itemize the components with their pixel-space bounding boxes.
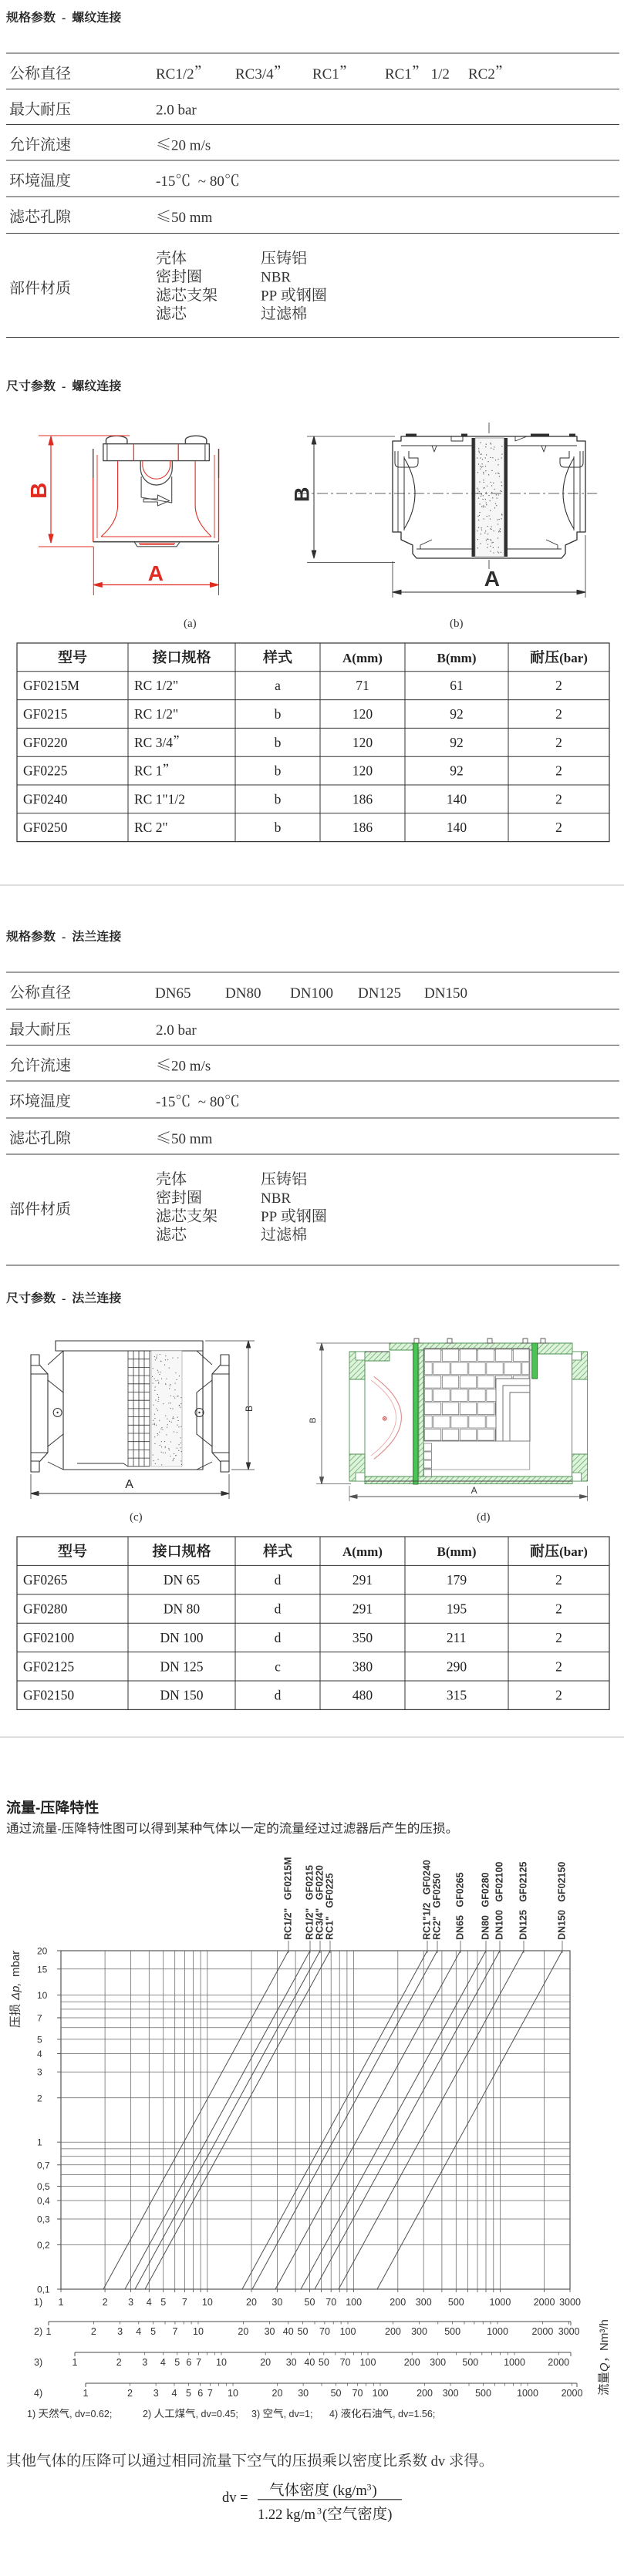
svg-text:dv: dv [431,2454,446,2470]
svg-text:2: 2 [555,763,562,779]
svg-text:DN100: DN100 [290,985,333,1002]
svg-text:GF02125: GF02125 [518,1862,529,1902]
svg-text:2: 2 [555,1688,562,1703]
svg-text:350: 350 [352,1630,373,1645]
svg-text:DN: DN [164,1572,184,1588]
svg-text:65: 65 [187,1572,201,1588]
svg-text:5: 5 [37,2034,42,2045]
svg-text:2: 2 [555,735,562,750]
svg-text:70: 70 [325,2297,336,2308]
svg-text:300: 300 [430,2357,446,2368]
svg-text:380: 380 [352,1658,373,1674]
svg-text:2: 2 [91,2326,96,2337]
svg-text:0,3: 0,3 [37,2214,50,2225]
svg-text:120: 120 [352,735,373,750]
svg-text:3: 3 [367,2482,372,2493]
svg-text:5: 5 [186,2388,191,2399]
svg-text:1000: 1000 [504,2357,525,2368]
svg-text:10: 10 [202,2297,213,2308]
svg-text:10: 10 [216,2357,227,2368]
svg-text:,: , [284,2409,286,2419]
svg-text:dv=1;: dv=1; [289,2409,313,2419]
svg-text:GF0225: GF0225 [325,1873,336,1908]
svg-text:(d): (d) [477,1511,491,1524]
svg-text:PP: PP [261,1209,277,1225]
svg-text:NBR: NBR [261,1190,291,1207]
svg-text:2: 2 [555,1630,562,1645]
svg-text:c: c [275,1658,281,1674]
svg-text:211: 211 [447,1630,467,1645]
svg-text:15: 15 [37,1964,48,1975]
svg-text:GF02125: GF02125 [23,1658,74,1674]
svg-text:DN100: DN100 [494,1910,505,1940]
svg-text:b: b [275,791,282,806]
svg-text:2000: 2000 [562,2388,583,2399]
svg-text:7: 7 [207,2388,213,2399]
svg-text:6: 6 [186,2357,191,2368]
svg-text:DN: DN [164,1601,184,1617]
svg-text:A: A [148,561,164,585]
svg-text:PP: PP [261,288,277,305]
svg-text:30: 30 [286,2357,297,2368]
svg-text:RC: RC [134,820,152,835]
svg-text:,: , [196,2409,198,2419]
svg-text:RC1/2": RC1/2" [283,1908,294,1940]
svg-text:2): 2) [143,2409,151,2419]
svg-text:RC: RC [134,706,152,722]
svg-text:10: 10 [37,1990,48,2001]
svg-text:30: 30 [272,2297,282,2308]
svg-text:6: 6 [197,2388,203,2399]
svg-text:RC1: RC1 [312,66,339,82]
svg-text:40: 40 [283,2326,294,2337]
svg-text:1/2": 1/2" [156,678,179,693]
svg-text:m/s: m/s [190,138,211,154]
svg-text:1"1/2: 1"1/2 [156,791,185,806]
svg-text:GF0225: GF0225 [23,763,68,779]
svg-text:3: 3 [153,2388,159,2399]
svg-text:0,1: 0,1 [37,2285,50,2295]
svg-text:GF0240: GF0240 [422,1860,433,1894]
svg-text:DN125: DN125 [358,985,401,1002]
svg-text:RC: RC [134,791,152,806]
svg-text:A(mm): A(mm) [342,1544,383,1559]
svg-text:291: 291 [352,1572,373,1588]
svg-text:1.22: 1.22 [258,2507,282,2523]
svg-text:500: 500 [448,2297,464,2308]
svg-text:70: 70 [340,2357,351,2368]
svg-text:3000: 3000 [559,2297,581,2308]
svg-text:RC: RC [134,678,152,693]
svg-text:2: 2 [103,2297,108,2308]
svg-text:A: A [484,567,500,591]
svg-text:500: 500 [444,2326,460,2337]
svg-text:-: - [62,380,66,393]
svg-text:1: 1 [59,2297,64,2308]
svg-text:61: 61 [450,678,464,693]
svg-text:50: 50 [298,2326,309,2337]
svg-text:(bar): (bar) [559,1544,588,1559]
svg-text:2: 2 [116,2357,122,2368]
svg-text:70: 70 [319,2326,330,2337]
svg-text:1/2": 1/2" [156,706,179,722]
svg-text:20: 20 [272,2388,283,2399]
svg-text:3: 3 [117,2326,123,2337]
svg-text:d: d [275,1601,282,1617]
svg-text:RC1: RC1 [385,66,412,82]
svg-text:3: 3 [128,2297,133,2308]
svg-text:): ) [373,2483,377,2499]
svg-text:GF02150: GF02150 [557,1862,568,1902]
svg-text:3): 3) [251,2409,260,2419]
svg-text:b: b [275,735,282,750]
svg-text:DN80: DN80 [481,1915,491,1940]
svg-text:d: d [275,1688,282,1703]
svg-text:200: 200 [390,2297,406,2308]
svg-text:100: 100 [346,2297,362,2308]
svg-text:GF02150: GF02150 [23,1688,74,1703]
svg-text:(bar): (bar) [559,651,588,665]
svg-text:(kg/m: (kg/m [333,2483,368,2499]
svg-text:GF0215M: GF0215M [283,1857,294,1901]
svg-text:B: B [244,1406,255,1412]
svg-text:kg/m: kg/m [286,2507,316,2523]
svg-text:4: 4 [147,2297,152,2308]
svg-text:140: 140 [447,820,467,835]
svg-text:-: - [57,1823,61,1836]
svg-text:Δp,: Δp, [9,1982,22,2001]
svg-text:2: 2 [555,820,562,835]
svg-text:DN65: DN65 [455,1915,466,1940]
svg-text:dv=0.62;: dv=0.62; [75,2409,112,2419]
svg-text:GF0280: GF0280 [23,1601,68,1617]
svg-text:2.0: 2.0 [156,103,174,119]
svg-text:-: - [62,931,66,944]
svg-text:GF02100: GF02100 [23,1630,74,1645]
svg-text:80: 80 [210,173,224,190]
svg-text:186: 186 [352,820,373,835]
svg-text:195: 195 [447,1601,467,1617]
svg-text:70: 70 [352,2388,363,2399]
svg-text:315: 315 [447,1688,467,1703]
svg-text:RC2": RC2" [432,1916,443,1940]
svg-text:290: 290 [447,1658,467,1674]
svg-text:71: 71 [356,678,369,693]
svg-text:DN: DN [160,1688,180,1703]
svg-text:NBR: NBR [261,270,291,286]
svg-text:20: 20 [171,138,186,154]
svg-text:4: 4 [136,2326,141,2337]
svg-text:-: - [35,1800,40,1817]
svg-text:RC: RC [134,735,152,750]
svg-text:RC1/2": RC1/2" [305,1908,315,1940]
svg-text:300: 300 [411,2326,427,2337]
svg-text:120: 120 [352,763,373,779]
svg-text:92: 92 [450,735,464,750]
svg-text:0,4: 0,4 [37,2196,50,2207]
svg-text:4): 4) [34,2388,42,2399]
svg-text:DN125: DN125 [518,1910,529,1940]
svg-text:50: 50 [319,2357,329,2368]
svg-text:(a): (a) [184,618,197,630]
svg-text:B: B [291,487,314,503]
svg-text:20: 20 [246,2297,257,2308]
svg-text:50: 50 [305,2297,315,2308]
svg-text:3000: 3000 [558,2326,580,2337]
svg-text:3/4: 3/4 [156,735,174,750]
svg-text:DN: DN [160,1630,180,1645]
svg-text:2: 2 [555,706,562,722]
svg-text:2: 2 [555,791,562,806]
svg-text:dv=1.56;: dv=1.56; [398,2409,435,2419]
svg-text:DN150: DN150 [557,1910,568,1940]
svg-text:100: 100 [360,2357,376,2368]
svg-text:mbar: mbar [9,1951,22,1977]
svg-text:125: 125 [183,1658,204,1674]
svg-text:5: 5 [160,2297,166,2308]
svg-text:50: 50 [171,1131,186,1147]
svg-text:2: 2 [555,1658,562,1674]
svg-text:1000: 1000 [517,2388,538,2399]
svg-text:2000: 2000 [534,2297,555,2308]
svg-text:1: 1 [73,2357,78,2368]
svg-text:bar: bar [178,103,197,119]
svg-text:100: 100 [183,1630,204,1645]
svg-text:DN80: DN80 [225,985,261,1002]
svg-text:80: 80 [210,1094,224,1110]
svg-text:-15: -15 [156,173,175,190]
svg-text:200: 200 [385,2326,401,2337]
svg-text:291: 291 [352,1601,373,1617]
svg-text:GF02100: GF02100 [494,1862,505,1902]
svg-text:7: 7 [37,2013,42,2024]
svg-text:30: 30 [298,2388,309,2399]
svg-text:80: 80 [187,1601,201,1617]
svg-text:1: 1 [156,763,163,779]
svg-text:4: 4 [172,2388,177,2399]
svg-text:2): 2) [34,2326,42,2337]
svg-text:7: 7 [196,2357,201,2368]
svg-text:1: 1 [46,2326,52,2337]
svg-text:GF0215: GF0215 [23,706,68,722]
svg-text:GF0215: GF0215 [305,1865,315,1900]
svg-text:5: 5 [150,2326,156,2337]
svg-text:GF0220: GF0220 [23,735,68,750]
svg-text:GF0265: GF0265 [23,1572,68,1588]
svg-text:RC1"1/2: RC1"1/2 [422,1903,433,1940]
svg-text:3: 3 [37,2067,42,2078]
svg-text:dv: dv [222,2490,237,2506]
svg-text:,: , [393,2409,395,2419]
svg-text:1): 1) [34,2297,42,2308]
svg-text:GF0280: GF0280 [481,1872,491,1907]
svg-text:B: B [27,483,52,499]
svg-text:120: 120 [352,706,373,722]
svg-text:-: - [62,12,66,25]
svg-text:2: 2 [555,1572,562,1588]
svg-text:d: d [275,1630,282,1645]
svg-text:=: = [240,2490,248,2506]
svg-text:3: 3 [142,2357,147,2368]
svg-text:2000: 2000 [548,2357,569,2368]
svg-text:500: 500 [475,2388,491,2399]
svg-text:0,5: 0,5 [37,2181,50,2192]
svg-text:a: a [275,678,281,693]
svg-text:300: 300 [416,2297,432,2308]
svg-text:(: ( [322,2507,327,2523]
svg-text:92: 92 [450,763,464,779]
svg-text:300: 300 [443,2388,459,2399]
svg-text:20: 20 [37,1946,48,1957]
svg-text:A: A [125,1478,133,1491]
svg-text:1/2: 1/2 [431,66,450,82]
svg-text:140: 140 [447,791,467,806]
svg-text:B(mm): B(mm) [437,1544,477,1559]
svg-text:GF0250: GF0250 [432,1873,443,1908]
svg-text:(b): (b) [450,618,464,630]
svg-text:3: 3 [317,2506,322,2517]
svg-text:GF0220: GF0220 [315,1865,325,1900]
svg-text:Q: Q [598,2362,611,2372]
svg-text:mm: mm [190,210,213,226]
svg-text:Nm³/h: Nm³/h [598,2319,611,2351]
svg-text:50: 50 [171,210,186,226]
svg-text:2": 2" [156,820,168,835]
svg-text:RC3/4": RC3/4" [315,1908,325,1940]
svg-text:10: 10 [228,2388,238,2399]
svg-text:A(mm): A(mm) [342,651,383,665]
svg-text:2000: 2000 [532,2326,554,2337]
svg-text:,: , [69,2409,72,2419]
svg-text:~: ~ [198,173,206,190]
svg-text:7: 7 [182,2297,187,2308]
svg-text:2: 2 [555,678,562,693]
svg-text:-15: -15 [156,1094,175,1110]
svg-text:150: 150 [183,1688,204,1703]
svg-text:480: 480 [352,1688,373,1703]
svg-text:10: 10 [193,2326,204,2337]
svg-text:100: 100 [373,2388,389,2399]
svg-text:): ) [387,2507,392,2523]
svg-text:2: 2 [37,2093,42,2103]
svg-text:GF0240: GF0240 [23,791,68,806]
svg-text:1000: 1000 [490,2297,511,2308]
svg-text:100: 100 [340,2326,356,2337]
svg-text:mm: mm [190,1131,213,1147]
svg-text:4): 4) [329,2409,338,2419]
svg-text:200: 200 [417,2388,433,2399]
svg-text:200: 200 [404,2357,420,2368]
svg-text:~: ~ [198,1094,206,1110]
svg-text:RC: RC [134,763,152,779]
svg-text:1: 1 [83,2388,89,2399]
svg-text:bar: bar [178,1022,197,1039]
svg-text:4: 4 [37,2049,42,2059]
svg-text:20: 20 [238,2326,248,2337]
svg-text:3): 3) [34,2357,42,2368]
svg-text:50: 50 [331,2388,342,2399]
svg-text:b: b [275,820,282,835]
svg-text:dv=0.45;: dv=0.45; [201,2409,238,2419]
svg-text:40: 40 [304,2357,315,2368]
svg-text:186: 186 [352,791,373,806]
svg-text:2.0: 2.0 [156,1022,174,1039]
svg-text:7: 7 [173,2326,178,2337]
svg-text:GF0215M: GF0215M [23,678,79,693]
svg-text:d: d [275,1572,282,1588]
svg-text:20: 20 [171,1059,186,1075]
svg-text:20: 20 [260,2357,271,2368]
svg-text:DN: DN [160,1658,180,1674]
svg-text:RC1/2: RC1/2 [156,66,194,82]
svg-text:m/s: m/s [190,1059,211,1075]
svg-text:A: A [471,1485,477,1496]
svg-text:b: b [275,763,282,779]
svg-text:RC3/4: RC3/4 [235,66,274,82]
svg-text:1): 1) [27,2409,35,2419]
svg-text:2: 2 [127,2388,133,2399]
svg-text:0,7: 0,7 [37,2160,50,2170]
svg-text:500: 500 [462,2357,478,2368]
svg-text:RC1": RC1" [325,1916,336,1940]
svg-text:RC2: RC2 [468,66,495,82]
svg-text:GF0250: GF0250 [23,820,68,835]
svg-text:DN65: DN65 [155,985,191,1002]
svg-text:4: 4 [160,2357,166,2368]
svg-text:GF0265: GF0265 [455,1872,466,1907]
svg-text:5: 5 [174,2357,180,2368]
svg-text:DN150: DN150 [424,985,467,1002]
svg-text:0,2: 0,2 [37,2240,50,2251]
svg-text:-: - [62,1292,66,1305]
svg-text:1: 1 [37,2137,42,2148]
svg-text:92: 92 [450,706,464,722]
svg-text:179: 179 [447,1572,467,1588]
svg-text:B(mm): B(mm) [437,651,477,665]
svg-text:b: b [275,706,282,722]
svg-text:2: 2 [555,1601,562,1617]
svg-text:B: B [309,1417,318,1423]
svg-text:(c): (c) [130,1511,143,1524]
svg-text:30: 30 [265,2326,275,2337]
svg-text:1000: 1000 [487,2326,508,2337]
